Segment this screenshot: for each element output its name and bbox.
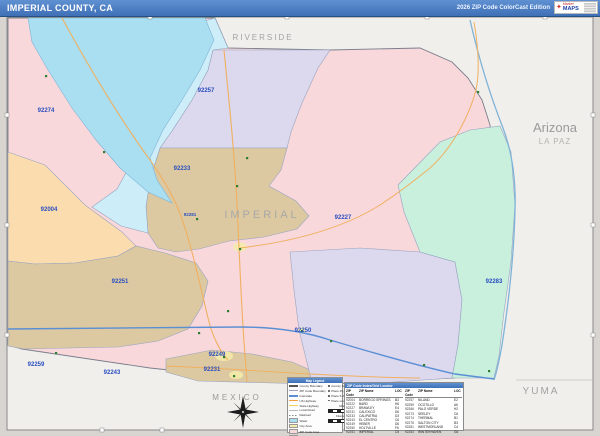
- zip-label-92281: 92281: [184, 212, 197, 217]
- zip-label-92283: 92283: [486, 279, 503, 285]
- zip-label-92251: 92251: [112, 279, 129, 285]
- region-92250: [290, 248, 462, 383]
- edition-text: 2026 ZIP Code ColorCast Edition: [457, 5, 550, 11]
- label-mexico: MEXICO: [212, 393, 262, 402]
- cell: G6: [454, 430, 462, 435]
- legend-entry: Local Road: [300, 408, 315, 412]
- label-riverside: RIVERSIDE: [232, 33, 293, 42]
- zip-label-92004: 92004: [41, 207, 58, 213]
- zip-label-92249: 92249: [209, 352, 226, 358]
- page-title: IMPERIAL COUNTY, CA: [7, 3, 113, 13]
- col-header: ZIP Code: [346, 389, 359, 398]
- county-map: RIVERSIDE Arizona LA PAZ YUMA MEXICO IMP…: [0, 0, 600, 436]
- zip-label-92231: 92231: [204, 367, 221, 373]
- col-header: ZIP Name: [418, 389, 454, 399]
- zip-label-92227: 92227: [335, 215, 352, 221]
- label-county-name: IMPERIAL: [224, 209, 299, 221]
- zip-label-92274: 92274: [38, 108, 55, 114]
- label-la-paz: LA PAZ: [539, 137, 572, 146]
- legend-entry: City Area: [300, 424, 312, 428]
- cell: C5: [395, 430, 403, 434]
- col-header: LOC: [454, 389, 462, 399]
- zip-label-92233: 92233: [174, 166, 191, 172]
- title-bar: IMPERIAL COUNTY, CA 2026 ZIP Code ColorC…: [0, 0, 600, 17]
- legend-line-samples: County Boundary ZIP Code Boundary Inters…: [289, 384, 326, 436]
- cell: 92251: [346, 430, 359, 434]
- zip-index-right: ZIP Code ZIP Name LOC 92257NILANDE2 9225…: [405, 389, 462, 435]
- col-header: ZIP Name: [359, 389, 395, 398]
- logo-line2: MAPS: [563, 7, 579, 13]
- label-yuma: YUMA: [523, 386, 560, 397]
- map-legend: Map Legend County Boundary ZIP Code Boun…: [287, 377, 343, 433]
- zip-index-table: ZIP Code Index/Grid Locator ZIP Code ZIP…: [344, 382, 464, 431]
- legend-entry: State Highway: [300, 404, 319, 408]
- cell: IMPERIAL: [359, 430, 395, 434]
- zip-label-92257: 92257: [198, 88, 215, 94]
- legend-entry: ZIP Code Boundary: [300, 389, 326, 393]
- label-arizona: Arizona: [533, 120, 578, 135]
- logo-star-icon: ✦: [556, 4, 562, 11]
- legend-entry: Railroad: [300, 413, 311, 417]
- legend-entry: ZIP Code Area: [300, 430, 320, 434]
- legend-entry: County Boundary: [300, 384, 323, 388]
- cell: 92283: [405, 430, 418, 435]
- zip-index-left: ZIP Code ZIP Name LOC 92004BORREGO SPRIN…: [346, 389, 403, 435]
- legend-entry: Interstate: [300, 394, 313, 398]
- logo-info-box: [584, 3, 596, 13]
- col-header: LOC: [395, 389, 403, 398]
- zip-label-92259: 92259: [28, 362, 45, 368]
- publisher-logo: ✦ Market MAPS: [554, 1, 598, 14]
- urban-calexico: [229, 371, 243, 379]
- legend-entry: US Highway: [300, 399, 317, 403]
- cell: WINTERHAVEN: [418, 430, 454, 435]
- legend-entry: Water: [300, 419, 308, 423]
- zip-label-92250: 92250: [295, 328, 312, 334]
- map-poster: RIVERSIDE Arizona LA PAZ YUMA MEXICO IMP…: [0, 0, 600, 436]
- zip-label-92243: 92243: [104, 370, 121, 376]
- col-header: ZIP Code: [405, 389, 418, 399]
